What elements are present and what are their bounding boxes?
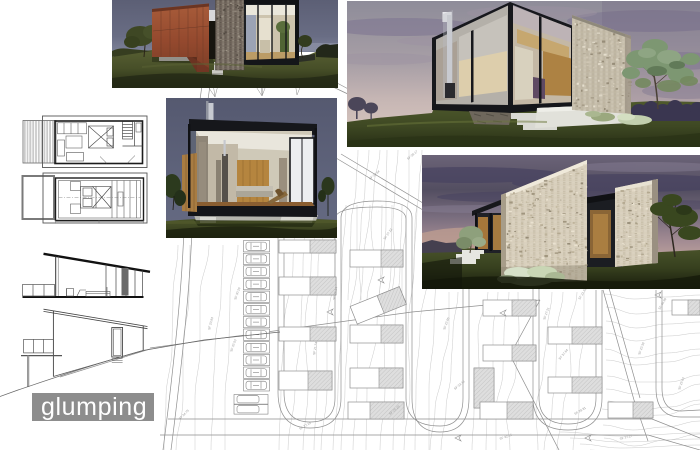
svg-text:glumping: glumping xyxy=(41,393,147,421)
